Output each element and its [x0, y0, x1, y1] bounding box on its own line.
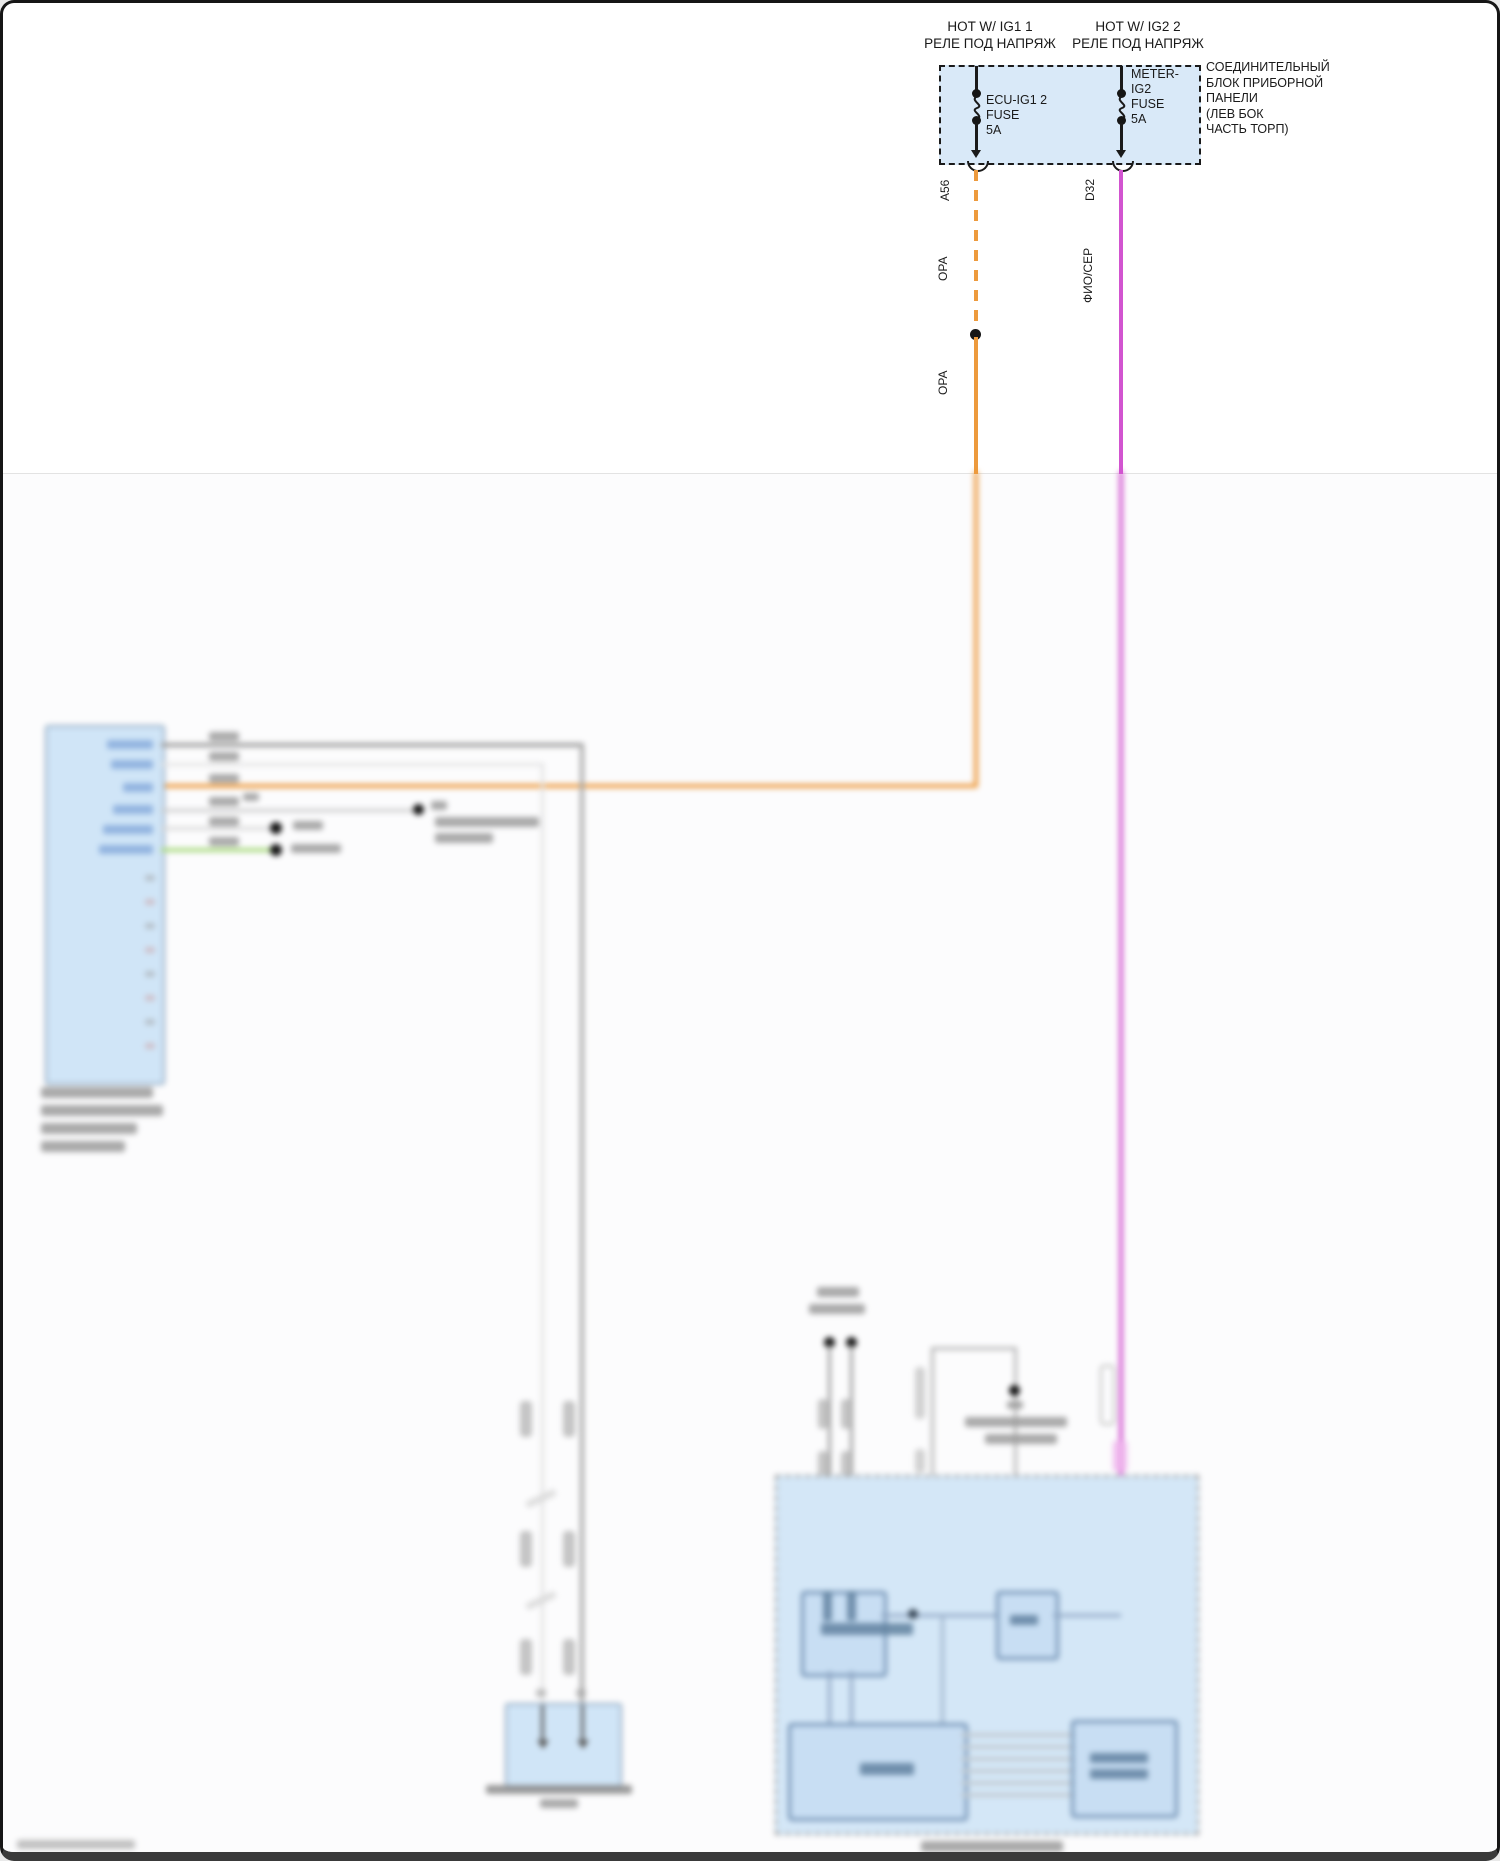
wire-white-horizontal [161, 763, 544, 766]
wire-pale [161, 827, 276, 830]
splice-dot [908, 1609, 918, 1619]
connector-icon [536, 1689, 546, 1697]
component-pin [847, 1591, 856, 1621]
component-pin [823, 1591, 832, 1621]
blurred-caption [41, 1123, 137, 1134]
wire-internal [850, 1671, 853, 1723]
connector-icon [520, 1401, 532, 1437]
wire-bus [961, 1781, 1071, 1785]
blurred-wire-code [209, 797, 239, 806]
wire-bus [961, 1733, 1071, 1737]
connector-icon [915, 1449, 925, 1473]
splice-dot [1009, 1385, 1020, 1396]
wire-into-box [581, 1705, 584, 1741]
connector-icon [520, 1639, 532, 1675]
blurred-caption [965, 1417, 1067, 1427]
wire-gray-vertical [580, 743, 584, 1707]
wire-internal [828, 1671, 831, 1723]
connector-icon [818, 1399, 828, 1429]
blurred-diagram-region [3, 3, 1497, 1852]
splice-dot [413, 804, 424, 815]
blurred-caption [41, 1105, 163, 1116]
blurred-pin-stub [145, 1019, 155, 1025]
connector-icon [841, 1399, 851, 1429]
blurred-pin-label [113, 805, 153, 814]
blurred-pin-label [107, 740, 153, 749]
magenta-connector-sleeve [1113, 1441, 1127, 1471]
blurred-label [1007, 1401, 1023, 1409]
blurred-pin-label [111, 760, 153, 769]
blurred-label [435, 817, 539, 827]
blurred-wire-code [209, 817, 239, 826]
blurred-label [291, 844, 341, 853]
blurred-pin-label [103, 825, 153, 834]
blurred-label [1090, 1753, 1148, 1763]
wire-internal [941, 1615, 944, 1723]
wire-internal [1053, 1614, 1121, 1617]
wire-bus [961, 1757, 1071, 1761]
wire-green [161, 848, 276, 852]
blurred-pin-stub [145, 875, 155, 881]
wire-gray-horizontal [161, 743, 583, 747]
blurred-pin-stub [145, 995, 155, 1001]
blurred-label [1090, 1769, 1148, 1779]
wiring-diagram-page: HOT W/ IG1 1 РЕЛЕ ПОД НАПРЯЖ HOT W/ IG2 … [0, 0, 1500, 1861]
connector-icon [915, 1367, 925, 1419]
connector-icon [576, 1689, 586, 1697]
blurred-label [431, 801, 447, 810]
blurred-caption [921, 1841, 1063, 1852]
blurred-pin-stub [145, 1043, 155, 1049]
wire-bus [961, 1769, 1071, 1773]
connector-icon [563, 1531, 575, 1567]
blurred-watermark [17, 1840, 135, 1849]
blurred-caption [985, 1434, 1057, 1444]
ecu-block [45, 725, 165, 1085]
blurred-wire-code [209, 774, 239, 783]
wire-ig1-orange-vertical [974, 471, 978, 787]
blurred-caption [540, 1799, 578, 1808]
blurred-label [860, 1763, 914, 1775]
arrow-down-icon [537, 1740, 549, 1749]
blurred-wire-code [243, 793, 259, 801]
blurred-label [821, 1623, 913, 1635]
blurred-wire-code [209, 752, 239, 761]
wire-into-box [541, 1705, 544, 1741]
splice-dot [270, 844, 282, 856]
blurred-wire-code [209, 732, 239, 741]
blurred-label [293, 821, 323, 830]
blurred-pin-label [123, 783, 153, 792]
blurred-label [817, 1287, 859, 1297]
inner-component-2 [996, 1591, 1059, 1660]
blurred-pin-stub [145, 971, 155, 977]
connector-icon [1100, 1365, 1115, 1425]
wire-bus [961, 1793, 1071, 1797]
blurred-caption [41, 1087, 153, 1098]
connector-icon [563, 1639, 575, 1675]
blurred-wire-code [209, 837, 239, 846]
blurred-pin-stub [145, 947, 155, 953]
blurred-pin-stub [145, 899, 155, 905]
blurred-caption [41, 1141, 125, 1152]
blurred-pin-label [99, 845, 153, 854]
wire-gray-u-top [931, 1347, 1017, 1350]
wire-bus [961, 1745, 1071, 1749]
connector-icon [520, 1531, 532, 1567]
small-component-box [505, 1703, 622, 1789]
wire-internal [881, 1614, 996, 1617]
ground-bar [486, 1785, 632, 1794]
wire-ig1-orange-horizontal [161, 784, 977, 788]
wire-white-vertical [541, 763, 544, 1707]
connector-icon [563, 1401, 575, 1437]
blurred-pin-stub [145, 923, 155, 929]
splice-dot [270, 822, 282, 834]
wire-lightgray [161, 809, 418, 812]
blurred-label [435, 833, 493, 843]
connector-icon [841, 1451, 851, 1477]
arrow-down-icon [577, 1740, 589, 1749]
blurred-label [1010, 1615, 1038, 1625]
connector-icon [818, 1451, 828, 1477]
blurred-label [809, 1304, 865, 1314]
